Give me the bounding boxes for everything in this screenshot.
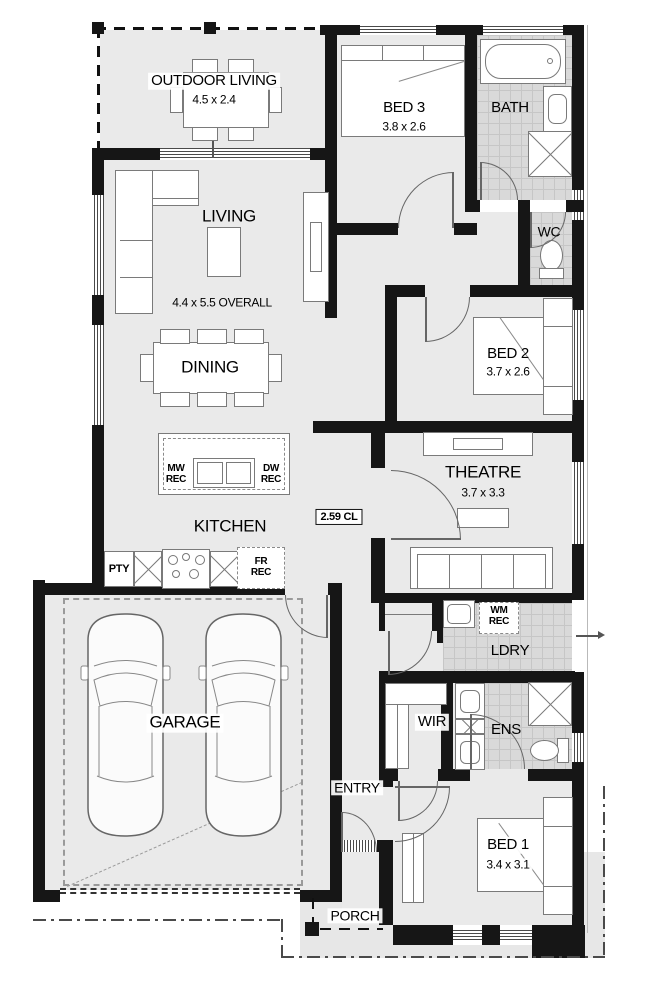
bed1-label: BED 1: [484, 837, 532, 854]
window-bed1-bottom-2: [500, 928, 532, 942]
bed1-dim: 3.4 x 3.1: [483, 858, 532, 871]
theatre-door-leaf: [391, 538, 461, 540]
living-sofa-left-arm: [115, 170, 153, 314]
ldry-exit-arrow-head: [598, 631, 605, 639]
bed3-headboard-divider: [423, 45, 424, 61]
kitchen-sink-bowl: [197, 462, 223, 484]
bed2-headboard-divider: [543, 326, 573, 327]
theatre-dim: 3.7 x 3.3: [461, 486, 504, 499]
ceiling-height-label: 2.59 CL: [315, 509, 362, 525]
wall-outdoor-divider-b: [310, 148, 337, 160]
wall-theatre-left-bottom: [371, 538, 385, 600]
dining-chair: [160, 392, 190, 407]
outdoor-chair: [192, 127, 218, 141]
entry-door-leaf: [341, 812, 343, 852]
bed2-headboard-divider: [543, 386, 573, 387]
living-sofa-cushion-line: [120, 277, 153, 278]
dining-chair: [268, 354, 282, 382]
wc-label: WC: [538, 224, 561, 239]
bath-shower: [528, 131, 572, 177]
garage-door-leaf: [326, 595, 328, 638]
bed3-headboard-divider: [382, 45, 383, 61]
cooktop-burner: [168, 555, 178, 565]
outdoor-chair: [269, 87, 282, 113]
wall-bath-south-b: [518, 200, 530, 212]
living-sofa-cushion-line: [153, 198, 199, 199]
cooktop-burner: [182, 553, 190, 561]
boundary-line-right: [603, 786, 605, 958]
wall-garage-left: [33, 580, 45, 902]
wall-bed3-bottom-b: [454, 223, 477, 235]
window-theatre-right: [572, 462, 584, 544]
porch-post: [305, 922, 319, 936]
ens-door-leaf: [470, 714, 472, 769]
living-tv: [310, 222, 322, 272]
cooktop-burner: [189, 569, 199, 579]
wm-rec-label: WM REC: [486, 605, 512, 627]
window-living-left-2: [92, 325, 104, 425]
eaves-line-right: [587, 25, 588, 933]
theatre-sofa-divider: [449, 554, 450, 589]
dining-chair: [140, 354, 154, 382]
theatre-sofa-divider: [513, 554, 514, 589]
roof-post-1: [92, 22, 104, 34]
theatre-sofa-divider: [481, 554, 482, 589]
dining-label: DINING: [178, 359, 242, 378]
kitchen-sink-bowl: [226, 462, 251, 484]
bed1-headboard-divider: [543, 886, 573, 887]
dining-chair: [234, 329, 264, 344]
window-ens-right: [572, 733, 584, 762]
wall-bath-south-a: [465, 200, 480, 212]
bed3-headboard: [341, 45, 465, 61]
wc-toilet-tank: [539, 268, 564, 279]
porch-dashed-left: [312, 898, 314, 924]
bed3-dim: 3.8 x 2.6: [379, 120, 428, 133]
outdoor-living-dim: 4.5 x 2.4: [189, 93, 238, 106]
wall-bed3-bottom-a: [325, 223, 398, 235]
wall-garage-right: [330, 595, 342, 902]
roofline-dashed-left: [97, 27, 100, 148]
bed1-headboard: [543, 797, 573, 915]
bed3-label: BED 3: [380, 100, 428, 117]
linen-wall-left: [379, 600, 385, 631]
wall-bed1-bottom-b: [482, 925, 500, 945]
cooktop-burner: [172, 570, 180, 578]
wall-bed1-bottom-a: [393, 925, 453, 945]
boundary-line-step: [281, 919, 283, 958]
bed1-door-leaf: [395, 786, 450, 788]
theatre-label: THEATRE: [445, 464, 521, 483]
window-bed1-bottom-1: [453, 928, 482, 942]
window-living-left-1: [92, 195, 104, 295]
porch-dashed-bottom: [320, 928, 383, 930]
boundary-line-bottom-left: [33, 919, 283, 921]
wir-rail-line: [397, 705, 398, 769]
bed1-robe-rail: [413, 833, 414, 903]
bed1-headboard-divider: [543, 826, 573, 827]
wall-outdoor-divider-a: [92, 148, 160, 160]
wir-label: WIR: [415, 714, 449, 731]
garage-label: GARAGE: [147, 714, 224, 733]
outdoor-chair: [228, 127, 254, 141]
wall-garage-bottom-right: [300, 890, 342, 902]
bed1-bed: [477, 818, 544, 892]
wall-garage-bottom-left: [33, 890, 60, 902]
ldry-trough-bowl: [447, 604, 471, 624]
bed2-dim: 3.7 x 2.6: [486, 365, 529, 378]
dining-chair: [197, 329, 227, 344]
wc-door-opening: [530, 200, 566, 212]
entry-label: ENTRY: [331, 780, 383, 795]
ldry-label: LDRY: [491, 643, 530, 660]
window-bed3-top: [360, 25, 436, 35]
linen-door-leaf: [388, 631, 390, 675]
dw-rec-label: DW REC: [261, 463, 281, 485]
bath-label: BATH: [491, 100, 529, 117]
ens-label: ENS: [491, 722, 521, 739]
ldry-exit-arrow-line: [576, 635, 600, 637]
window-bath-top: [483, 25, 563, 35]
wall-entry-front-stub: [377, 840, 393, 852]
living-sofa-cushion-line: [120, 240, 153, 241]
wall-wir-ens-bottom-b: [438, 769, 470, 781]
dining-chair: [160, 329, 190, 344]
wall-bed1-corner-block: [532, 925, 585, 958]
bed2-headboard: [543, 298, 573, 415]
stacker-door: [160, 148, 310, 160]
wall-wir-ens-bottom-c: [528, 769, 575, 781]
boundary-line-bottom-right: [281, 956, 605, 958]
kitchen-cabinet-x: [134, 551, 162, 587]
ens-toilet-bowl: [530, 740, 559, 761]
kitchen-cabinet-x: [210, 551, 238, 587]
ens-basin: [460, 690, 480, 713]
kitchen-label: KITCHEN: [194, 518, 267, 537]
porch-label: PORCH: [327, 908, 382, 923]
living-dim: 4.4 x 5.5 OVERALL: [172, 296, 272, 309]
outdoor-living-label: OUTDOOR LIVING: [148, 73, 280, 90]
bath-door-leaf: [480, 162, 482, 200]
wall-theatre-left-top: [371, 433, 385, 468]
floor-plan: OUTDOOR LIVING 4.5 x 2.4 BED 3 3.8 x 2.6…: [0, 0, 650, 1000]
theatre-coffee-table: [457, 508, 509, 528]
cooktop-burner: [195, 555, 205, 565]
wall-bed2-top-b: [470, 285, 582, 297]
outdoor-chair: [170, 87, 183, 113]
dining-chair: [197, 392, 227, 407]
wall-hall-bed2: [385, 285, 397, 428]
wir-shelf-top: [385, 683, 447, 705]
fr-rec-label: FR REC: [251, 556, 271, 578]
window-bed2-right: [572, 310, 584, 400]
bed3-door-leaf: [452, 172, 454, 228]
linen-shelf-line: [385, 614, 432, 615]
wall-bed2-top-a: [397, 285, 425, 297]
pantry-label: PTY: [109, 563, 130, 575]
bed2-door-leaf: [425, 297, 427, 342]
wc-door-leaf: [530, 212, 532, 248]
bed2-label: BED 2: [487, 346, 529, 363]
wall-bath-south-c: [566, 200, 584, 212]
garage-door-dashed: [60, 888, 300, 894]
living-coffee-table: [207, 227, 241, 277]
wall-bath-left: [465, 25, 477, 212]
dining-chair: [234, 392, 264, 407]
theatre-tv: [453, 438, 503, 450]
ens-shower: [528, 682, 572, 726]
wall-garage-top-b: [328, 583, 342, 595]
bathtub-drain: [547, 58, 553, 64]
wall-wir-ens-bottom-a: [393, 769, 398, 781]
bath-basin: [548, 94, 567, 124]
bath-door-opening: [480, 200, 518, 212]
living-label: LIVING: [202, 208, 256, 227]
mw-rec-label: MW REC: [166, 463, 186, 485]
roof-post-2: [204, 22, 216, 34]
